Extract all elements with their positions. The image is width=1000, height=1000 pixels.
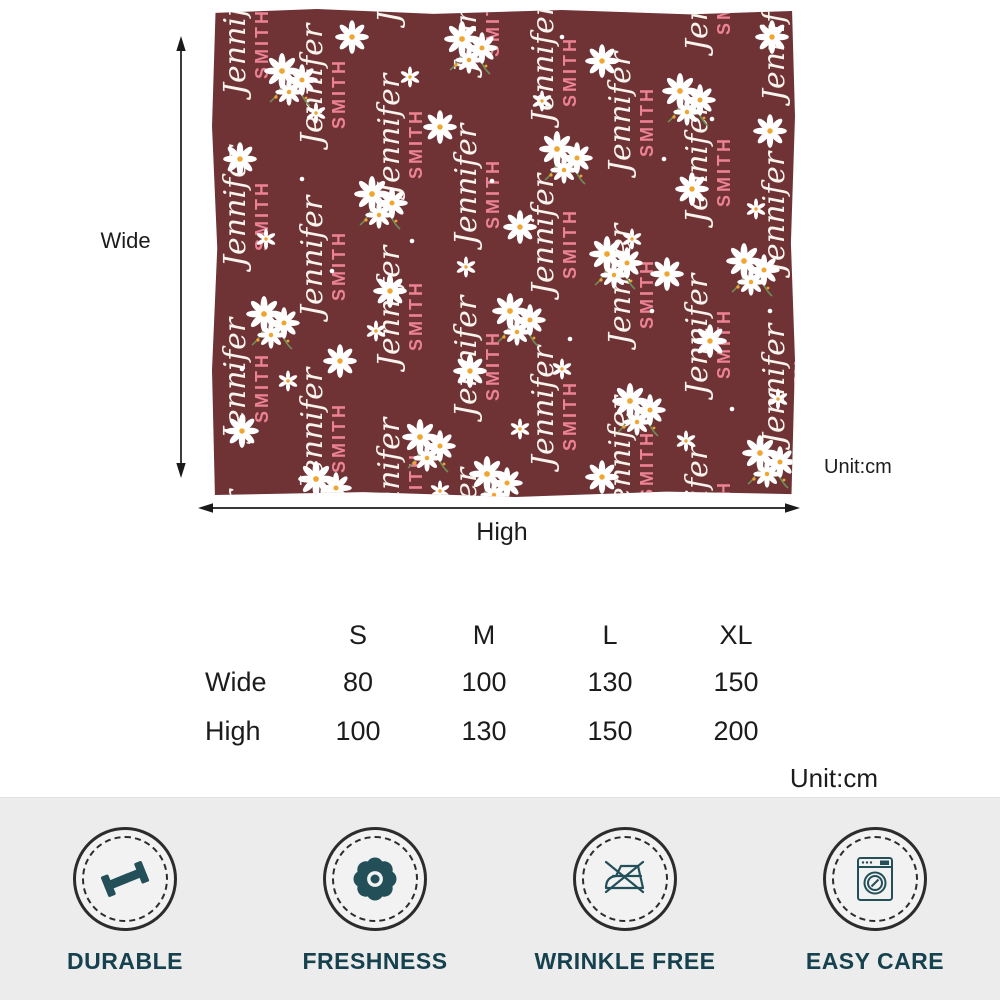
svg-text:Jennifer: Jennifer	[757, 494, 792, 497]
svg-text:Jennifer: Jennifer	[526, 9, 561, 129]
svg-text:SMITH: SMITH	[329, 402, 349, 473]
svg-text:Jennifer: Jennifer	[757, 322, 792, 451]
high-arrow-icon	[198, 503, 800, 512]
size-col-m: M	[421, 620, 547, 651]
svg-text:Jennifer: Jennifer	[218, 9, 253, 101]
daisy	[225, 414, 259, 448]
daisy-dot	[300, 177, 305, 182]
svg-text:Jennifer: Jennifer	[372, 416, 407, 497]
feature-label-durable: DURABLE	[67, 948, 183, 975]
feature-label-freshness: FRESHNESS	[302, 948, 447, 975]
feature-easy-care: EASY CARE	[750, 798, 1000, 1000]
daisy	[550, 156, 577, 183]
daisy	[503, 210, 537, 244]
daisy	[673, 98, 700, 125]
daisy	[455, 46, 482, 73]
washing-machine-icon	[846, 850, 904, 908]
svg-text:SMITH: SMITH	[637, 258, 657, 329]
daisy	[737, 268, 764, 295]
svg-text:SMITH: SMITH	[252, 352, 272, 423]
svg-text:SMITH: SMITH	[560, 208, 580, 279]
daisy	[323, 344, 357, 378]
name-motif: JenniferSMITH	[757, 322, 795, 451]
daisy	[600, 261, 627, 288]
no-iron-icon	[596, 850, 654, 908]
svg-text:SMITH: SMITH	[714, 136, 734, 207]
daisy	[365, 201, 392, 228]
daisy	[675, 172, 709, 206]
size-table-header: S M L XL	[205, 620, 805, 651]
easy-care-badge	[823, 827, 927, 931]
high-dimension-label: High	[402, 518, 602, 547]
daisy	[257, 321, 284, 348]
daisy	[753, 114, 787, 148]
svg-text:SMITH: SMITH	[714, 9, 734, 35]
daisy-dot	[710, 117, 715, 122]
svg-text:Jennifer: Jennifer	[680, 444, 715, 497]
daisy	[413, 444, 440, 471]
high-value-l: 150	[547, 716, 673, 747]
daisy-dot	[568, 337, 573, 342]
daisy	[755, 20, 789, 54]
daisy	[275, 78, 302, 105]
wide-value-s: 80	[295, 667, 421, 698]
flower-icon	[346, 850, 404, 908]
name-motif: JenniferSMITH	[757, 9, 795, 107]
name-motif: JenniferSMITH	[757, 494, 795, 497]
svg-text:Jennifer: Jennifer	[449, 294, 484, 423]
feature-wrinkle-free: WRINKLE FREE	[500, 798, 750, 1000]
wide-value-xl: 150	[673, 667, 799, 698]
daisy	[650, 257, 684, 291]
freshness-badge	[323, 827, 427, 931]
daisy	[453, 354, 487, 388]
svg-text:SMITH: SMITH	[637, 86, 657, 157]
blanket-preview: JenniferSMITHJenniferSMITHJenniferSMITHJ…	[212, 9, 795, 497]
size-col-l: L	[547, 620, 673, 651]
daisy-dot	[330, 269, 335, 274]
wide-arrow-icon	[176, 36, 185, 478]
daisy	[335, 20, 369, 54]
svg-text:SMITH: SMITH	[791, 14, 795, 85]
daisy	[585, 460, 619, 494]
daisy	[585, 44, 619, 78]
daisy-dot	[410, 239, 415, 244]
unit-label-bottom: Unit:cm	[790, 763, 878, 794]
high-value-s: 100	[295, 716, 421, 747]
svg-text:Jennifer: Jennifer	[372, 244, 407, 373]
daisy-dot	[490, 179, 495, 184]
row-label-high: High	[205, 716, 295, 747]
daisy-dot	[768, 309, 773, 314]
svg-text:Jennifer: Jennifer	[372, 72, 407, 201]
wrinkle-free-badge	[573, 827, 677, 931]
svg-text:Jennifer: Jennifer	[295, 194, 330, 323]
wide-dimension-label: Wide	[78, 228, 173, 254]
svg-text:SMITH: SMITH	[791, 186, 795, 257]
product-size-guide: JenniferSMITHJenniferSMITHJenniferSMITHJ…	[0, 0, 1000, 1000]
row-label-wide: Wide	[205, 667, 295, 698]
feature-freshness: FRESHNESS	[250, 798, 500, 1000]
svg-text:SMITH: SMITH	[791, 358, 795, 429]
daisy	[223, 142, 257, 176]
svg-text:SMITH: SMITH	[329, 230, 349, 301]
svg-text:SMITH: SMITH	[714, 480, 734, 497]
size-col-s: S	[295, 620, 421, 651]
daisy	[623, 408, 650, 435]
daisy-dot	[662, 157, 667, 162]
size-col-xl: XL	[673, 620, 799, 651]
features-band: DURABLE	[0, 797, 1000, 1000]
feature-label-wrinkle-free: WRINKLE FREE	[534, 948, 715, 975]
svg-text:SMITH: SMITH	[329, 58, 349, 129]
feature-label-easy-care: EASY CARE	[806, 948, 944, 975]
svg-text:SMITH: SMITH	[406, 108, 426, 179]
blanket-pattern: JenniferSMITHJenniferSMITHJenniferSMITHJ…	[212, 9, 795, 497]
durable-badge	[73, 827, 177, 931]
svg-text:SMITH: SMITH	[637, 430, 657, 497]
wide-value-m: 100	[421, 667, 547, 698]
feature-durable: DURABLE	[0, 798, 250, 1000]
svg-text:SMITH: SMITH	[483, 158, 503, 229]
svg-text:SMITH: SMITH	[560, 36, 580, 107]
daisy	[373, 274, 407, 308]
unit-label-top: Unit:cm	[824, 456, 892, 479]
daisy	[753, 460, 780, 487]
high-value-m: 130	[421, 716, 547, 747]
svg-text:SMITH: SMITH	[406, 280, 426, 351]
daisy-dot	[730, 407, 735, 412]
daisy-dot	[560, 35, 565, 40]
svg-text:Jennifer: Jennifer	[680, 9, 715, 57]
daisy-dot	[240, 367, 245, 372]
daisy	[693, 324, 727, 358]
svg-text:Jennifer: Jennifer	[449, 122, 484, 251]
size-table-row-wide: Wide 80 100 130 150	[205, 667, 805, 698]
daisy	[503, 318, 530, 345]
size-table-row-high: High 100 130 150 200	[205, 716, 805, 747]
daisy	[423, 110, 457, 144]
daisy-dot	[650, 309, 655, 314]
high-value-xl: 200	[673, 716, 799, 747]
wide-value-l: 130	[547, 667, 673, 698]
dumbbell-icon	[96, 850, 154, 908]
svg-text:SMITH: SMITH	[560, 380, 580, 451]
